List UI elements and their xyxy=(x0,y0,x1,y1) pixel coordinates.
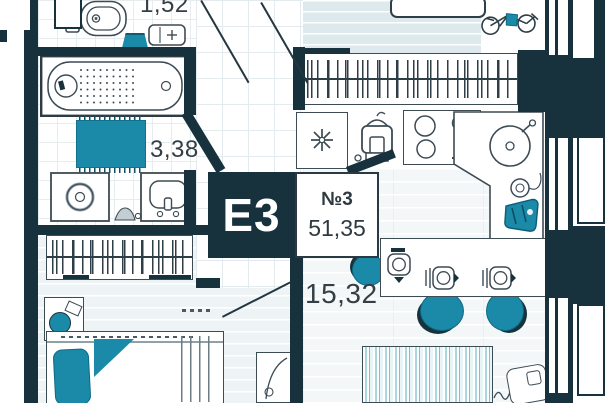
bathroom-door-jamb xyxy=(184,47,196,115)
bathroom-area-label: 3,38 xyxy=(150,138,199,162)
stool-icon xyxy=(420,291,464,331)
bathroom-wall-segment xyxy=(184,170,196,225)
hanging-clothes-icon xyxy=(52,240,187,274)
bedroom-shelf-marks xyxy=(182,309,212,312)
blanket-stitch-line xyxy=(61,336,193,338)
entry-bench-icon xyxy=(390,0,486,18)
wardrobe-track xyxy=(63,275,89,279)
bed-pillow-icon xyxy=(53,348,92,403)
apartment-total-area: 51,35 xyxy=(308,215,366,242)
washing-machine-icon xyxy=(50,172,110,222)
wardrobe-track xyxy=(149,275,191,279)
apartment-type-badge: E3 xyxy=(208,172,295,258)
bedroom-living-wall xyxy=(290,256,303,403)
bedroom-door-jamb xyxy=(196,278,220,288)
window-icon xyxy=(549,298,568,393)
kitchen-island xyxy=(452,110,545,242)
adjacent-balcony xyxy=(577,136,605,224)
round-sink-icon xyxy=(490,126,530,166)
bedroom-wardrobe-icon xyxy=(46,235,193,280)
kitchen-counter-left xyxy=(296,112,348,169)
wall-stub xyxy=(0,30,7,42)
adjacent-wall-block xyxy=(594,0,605,58)
floor-plan: E3 №3 51,35 1,52 3,38 15,32 xyxy=(0,0,605,403)
adjacent-balcony xyxy=(577,304,605,396)
living-right-block xyxy=(518,50,545,112)
bedroom-top-wall xyxy=(38,225,212,235)
kettle-icon xyxy=(511,179,529,197)
window-icon xyxy=(549,138,568,230)
window-icon xyxy=(549,0,568,55)
place-setting-icon xyxy=(422,262,460,294)
window-mullion xyxy=(555,0,558,55)
leaning-mirror-icon xyxy=(256,352,292,403)
armchair-cushion xyxy=(526,370,542,386)
window-mullion xyxy=(555,138,558,230)
stool-icon xyxy=(486,291,524,331)
rug-icon xyxy=(362,346,493,403)
place-setting-icon xyxy=(479,262,517,294)
hall-wardrobe-icon xyxy=(300,53,518,105)
apartment-type-label: E3 xyxy=(222,188,280,242)
living-area-label: 15,32 xyxy=(305,280,378,308)
bicycle-icon xyxy=(474,0,546,46)
adjacent-wall-block xyxy=(573,58,605,138)
hall-hanging-clothes-icon xyxy=(307,60,511,98)
wc-area-label: 1,52 xyxy=(140,0,189,17)
left-outer-wall xyxy=(24,30,38,403)
window-mullion xyxy=(555,298,558,393)
bathtub-icon xyxy=(40,55,190,117)
duct-shaft xyxy=(54,0,82,29)
wc-step-icon xyxy=(122,33,148,48)
wardrobe-back-wall xyxy=(300,48,350,54)
bed-foot-folds xyxy=(181,336,215,402)
wc-sink-icon xyxy=(148,24,186,46)
asterisk-icon xyxy=(309,127,335,153)
apartment-number: №3 xyxy=(321,189,353,211)
bath-mat-fringe-top xyxy=(79,115,143,120)
bath-mat-icon xyxy=(76,120,146,168)
adjacent-wall-block xyxy=(573,226,605,304)
wc-divider-wall xyxy=(38,47,196,56)
watering-can-icon xyxy=(112,202,142,222)
apartment-info-badge: №3 51,35 xyxy=(295,172,379,258)
wall-stub xyxy=(30,0,38,32)
place-setting-icon xyxy=(384,247,412,285)
